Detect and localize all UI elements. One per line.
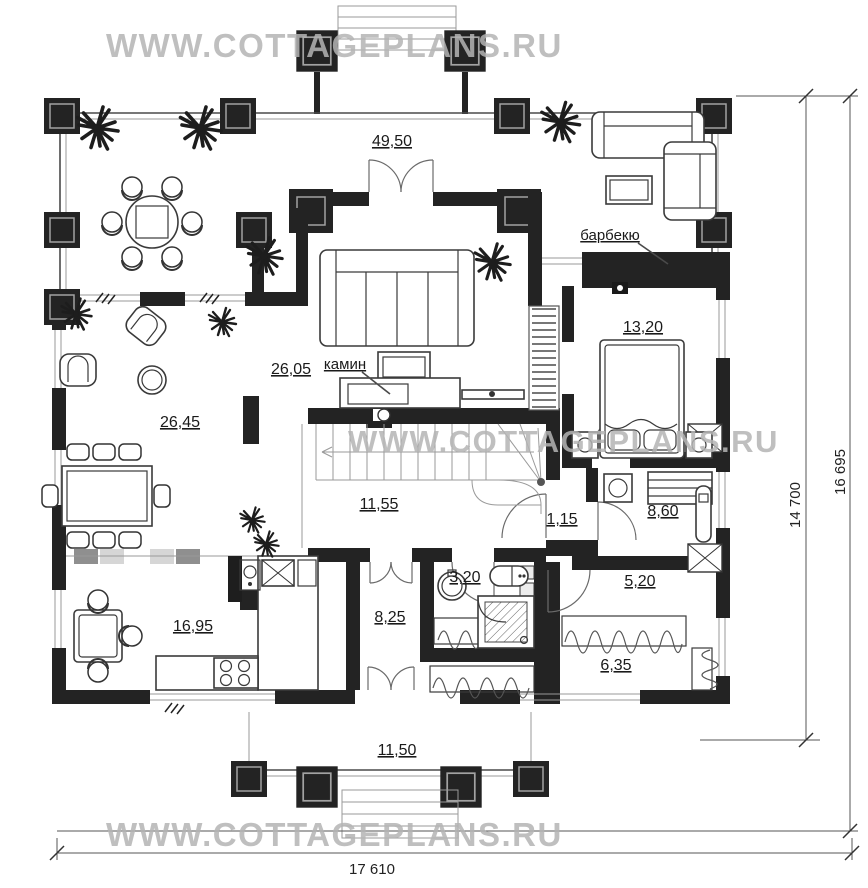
floor-plan-page: 14 700 16 695 17 610 49,50 26,05 26,45 1… <box>0 0 868 888</box>
terrace-table <box>102 177 202 270</box>
ironing-board <box>696 486 711 542</box>
room-label-terrace: 49,50 <box>372 133 412 150</box>
room-label-porch: 11,50 <box>378 742 417 759</box>
room-label-kitchen: 16,95 <box>173 618 213 635</box>
kitchen-table <box>74 590 142 682</box>
barbecue-block <box>582 252 730 288</box>
window <box>80 295 140 301</box>
toilet <box>490 566 528 586</box>
radiator-hash <box>165 703 184 714</box>
room-label-pantry: 5,20 <box>624 573 655 590</box>
stove <box>214 658 258 688</box>
room-label-bedroom: 13,20 <box>623 319 663 336</box>
room-label-hall: 11,55 <box>360 496 399 513</box>
window <box>719 618 725 676</box>
window <box>719 472 725 528</box>
watermark-middle: WWW.COTTAGEPLANS.RU <box>348 424 779 459</box>
shower <box>478 596 534 648</box>
window <box>542 258 582 264</box>
room-label-corridor: 1,15 <box>546 511 577 528</box>
room-label-boiler: 6,35 <box>600 657 631 674</box>
dim-depth-full: 16 695 <box>832 449 849 495</box>
room-label-bathroom-big: 8,60 <box>647 503 678 520</box>
stair-pivot <box>537 478 545 486</box>
washing-machine <box>604 474 632 502</box>
floor-plan-drawing: 14 700 16 695 17 610 49,50 26,05 26,45 1… <box>0 0 868 888</box>
barbecue-label: барбекю <box>580 227 640 244</box>
dim-depth-main: 14 700 <box>787 482 804 528</box>
terrace-lounge <box>592 112 716 220</box>
room-label-bathroom-small: 3,20 <box>449 569 480 586</box>
watermark-bottom: WWW.COTTAGEPLANS.RU <box>106 816 563 853</box>
room-label-dining: 26,45 <box>160 414 200 431</box>
furniture <box>42 112 716 690</box>
window <box>150 694 275 700</box>
window <box>55 590 61 648</box>
fireplace-label: камин <box>324 356 366 373</box>
room-label-living: 26,05 <box>271 361 311 378</box>
room-label-entry: 8,25 <box>374 609 405 626</box>
dim-width-full: 17 610 <box>349 861 395 878</box>
window <box>719 300 725 358</box>
tv-bench <box>462 390 524 399</box>
watermark-top: WWW.COTTAGEPLANS.RU <box>106 27 563 64</box>
living-sofa <box>320 250 474 346</box>
